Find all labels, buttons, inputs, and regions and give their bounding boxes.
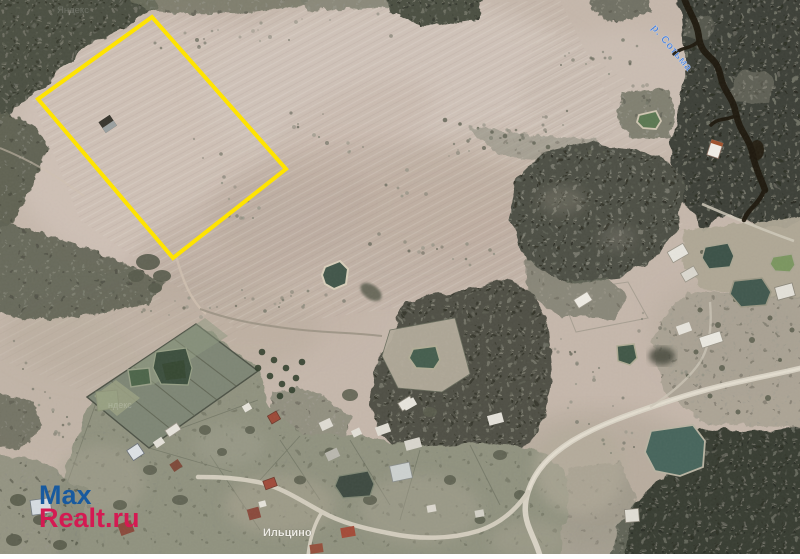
svg-text:Realt.ru: Realt.ru [39,503,140,533]
svg-text:Яндекс: Яндекс [57,5,89,16]
svg-text:ндекс: ндекс [108,400,132,410]
svg-text:Ильцино: Ильцино [263,527,312,539]
